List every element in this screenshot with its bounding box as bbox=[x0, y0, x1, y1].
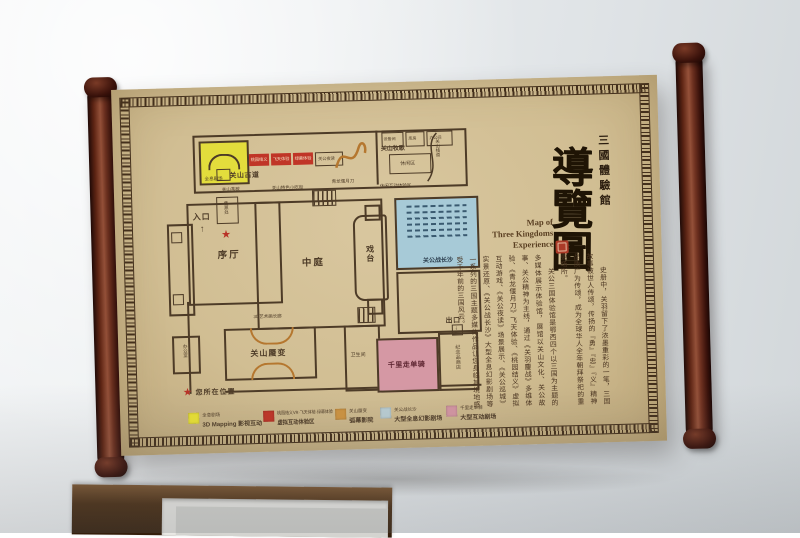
wall-shadow-overlay bbox=[0, 0, 800, 533]
